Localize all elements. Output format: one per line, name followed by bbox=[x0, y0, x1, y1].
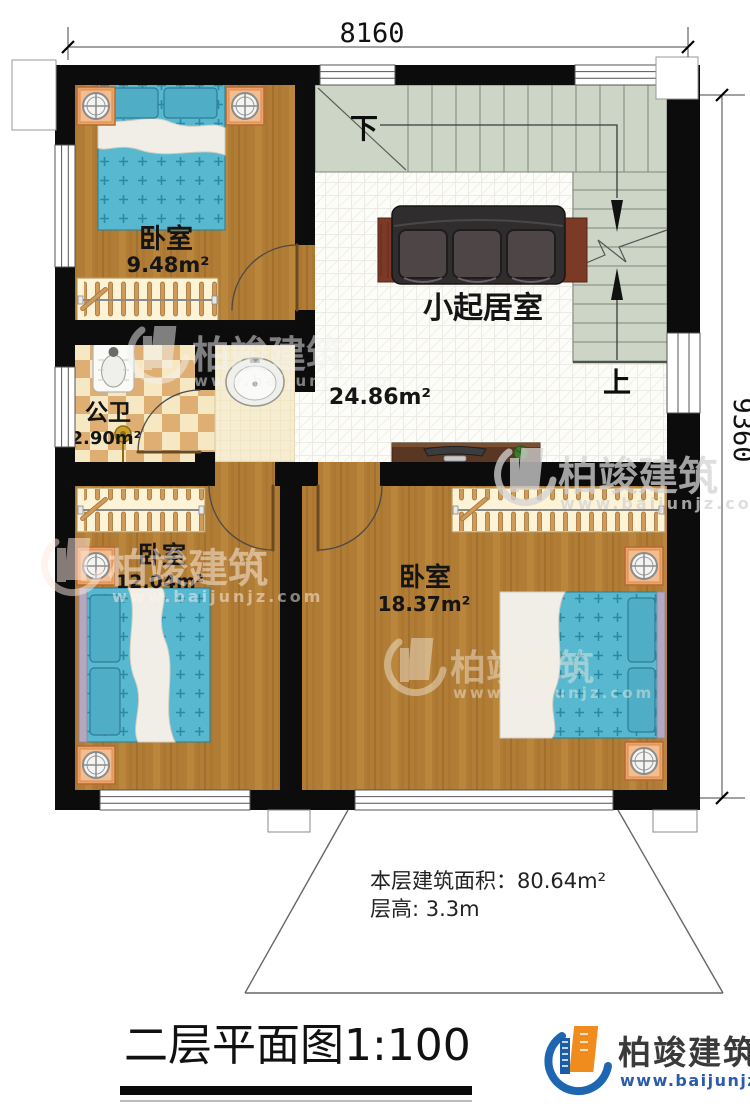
watermark: 柏竣建筑 www.baijunjz.com bbox=[498, 448, 750, 513]
page-title: 二层平面图1:100 bbox=[124, 1020, 471, 1071]
window bbox=[320, 65, 395, 85]
wall-bedroom1-right bbox=[295, 85, 315, 245]
window bbox=[55, 145, 75, 267]
brand-name: 柏竣建筑 bbox=[618, 1033, 750, 1072]
nightstand bbox=[77, 87, 115, 125]
stairs-down-label: 下 bbox=[350, 112, 378, 145]
bedroom3-door-gap bbox=[318, 462, 380, 486]
watermark-url: www.baijunjz.com bbox=[194, 372, 395, 390]
bathroom-label: 公卫 bbox=[85, 400, 131, 426]
wall-bedrooms-middle bbox=[280, 486, 302, 790]
watermark-url: www.baijunjz.com bbox=[453, 684, 654, 702]
floorplan-canvas: 下 上 卧室 9.48m² bbox=[0, 0, 750, 1104]
bed-double bbox=[79, 588, 210, 742]
hall-gap bbox=[295, 392, 315, 462]
brand-logo: 柏竣建筑 www.baijunjz.com bbox=[548, 1026, 750, 1091]
terrace-outline: 本层建筑面积：80.64m² 层高: 3.3m bbox=[245, 810, 723, 993]
bedroom3-label: 卧室 bbox=[399, 562, 451, 593]
brand-url: www.baijunjz.com bbox=[620, 1071, 750, 1090]
title-block: 二层平面图1:100 bbox=[120, 1020, 472, 1102]
wardrobe bbox=[77, 488, 205, 532]
sofa-cushion bbox=[399, 230, 447, 278]
bedroom3-area: 18.37m² bbox=[378, 592, 471, 616]
watermark-name: 柏竣建筑 bbox=[450, 648, 594, 689]
note-floor-height: 层高: 3.3m bbox=[370, 897, 480, 921]
dim-right-value: 9360 bbox=[727, 397, 750, 462]
window bbox=[355, 790, 613, 810]
wardrobe bbox=[77, 278, 218, 322]
window bbox=[55, 367, 75, 447]
window bbox=[575, 65, 668, 85]
wall-stub bbox=[653, 810, 697, 832]
stairs-up-label: 上 bbox=[603, 366, 631, 399]
bedroom1-area: 9.48m² bbox=[127, 253, 210, 277]
dim-top-value: 8160 bbox=[339, 18, 404, 49]
bed-headboard bbox=[79, 588, 87, 742]
bed-double bbox=[98, 76, 225, 230]
bathroom-door-gap bbox=[195, 390, 215, 452]
sofa-cushion bbox=[453, 230, 501, 278]
watermark-url: www.baijunjz.com bbox=[112, 587, 323, 606]
bed-pillow bbox=[90, 668, 120, 735]
nightstand bbox=[625, 742, 663, 780]
bed-pillow bbox=[628, 598, 655, 662]
dim-extension-box bbox=[12, 60, 56, 130]
bed-pillow bbox=[164, 88, 217, 118]
window bbox=[100, 790, 250, 810]
title-underline bbox=[120, 1086, 472, 1095]
brand-logo-icon bbox=[548, 1026, 608, 1091]
title-underline-thin bbox=[120, 1100, 472, 1102]
nightstand bbox=[625, 547, 663, 585]
bedroom1-label: 卧室 bbox=[139, 223, 193, 255]
bedroom2: 卧室 12.04m² bbox=[77, 488, 210, 784]
sofa-cushion bbox=[507, 230, 555, 278]
living-label: 小起居室 bbox=[423, 291, 543, 326]
watermark-name: 柏竣建筑 bbox=[192, 333, 344, 377]
bedroom2-door-gap bbox=[213, 462, 275, 486]
nightstand bbox=[77, 746, 115, 784]
sofa bbox=[378, 206, 587, 284]
dim-extension-box bbox=[656, 57, 698, 99]
note-floor-area: 本层建筑面积：80.64m² bbox=[370, 869, 606, 893]
nightstand bbox=[226, 87, 264, 125]
bathroom-area: 2.90m² bbox=[70, 428, 141, 449]
watermark-name: 柏竣建筑 bbox=[108, 546, 268, 592]
wall-stub bbox=[268, 810, 310, 832]
bed-headboard bbox=[657, 592, 665, 738]
window bbox=[667, 333, 700, 413]
